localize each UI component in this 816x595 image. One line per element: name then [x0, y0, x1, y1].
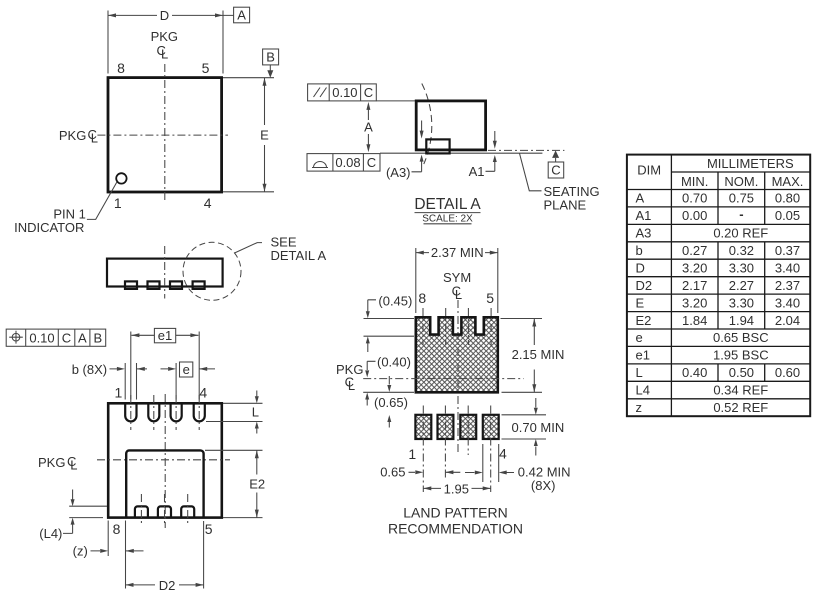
- svg-text:e1: e1: [158, 328, 172, 343]
- svg-text:E2: E2: [249, 476, 265, 491]
- svg-text:C: C: [364, 85, 373, 100]
- svg-text:A: A: [636, 191, 645, 206]
- svg-text:2.17: 2.17: [682, 278, 707, 293]
- svg-text:e: e: [636, 330, 643, 345]
- svg-text:DETAIL A: DETAIL A: [271, 248, 327, 263]
- svg-text:D2: D2: [159, 578, 176, 593]
- svg-text:D: D: [160, 8, 169, 23]
- svg-text:D2: D2: [636, 278, 653, 293]
- svg-text:LAND PATTERN: LAND PATTERN: [403, 505, 508, 521]
- svg-text:NOM.: NOM.: [724, 174, 758, 189]
- svg-text:e1: e1: [636, 348, 650, 363]
- svg-text:MILLIMETERS: MILLIMETERS: [707, 156, 794, 171]
- svg-text:PKG: PKG: [38, 455, 65, 470]
- svg-text:2.37 MIN: 2.37 MIN: [431, 245, 484, 260]
- svg-text:(A3): (A3): [386, 165, 411, 180]
- svg-text:0.10: 0.10: [332, 85, 357, 100]
- svg-text:2.04: 2.04: [775, 313, 800, 328]
- svg-text:0.70 MIN: 0.70 MIN: [512, 420, 565, 435]
- svg-text:A: A: [237, 8, 246, 23]
- svg-text:A1: A1: [636, 208, 652, 223]
- svg-text:E: E: [636, 295, 645, 310]
- svg-text:(0.45): (0.45): [378, 293, 412, 308]
- svg-text:4: 4: [199, 385, 207, 401]
- svg-text:SCALE: 2X: SCALE: 2X: [422, 214, 473, 225]
- svg-text:4: 4: [499, 446, 507, 462]
- svg-text:0.08: 0.08: [335, 155, 360, 170]
- svg-text:C: C: [367, 155, 376, 170]
- svg-text:3.40: 3.40: [775, 295, 800, 310]
- svg-text:2.15 MIN: 2.15 MIN: [512, 347, 565, 362]
- svg-text:b (8X): b (8X): [72, 362, 107, 377]
- svg-text:L: L: [636, 365, 643, 380]
- svg-text:A: A: [78, 330, 87, 345]
- svg-text:A3: A3: [636, 226, 652, 241]
- svg-text:2.27: 2.27: [729, 278, 754, 293]
- svg-text:L4: L4: [636, 383, 650, 398]
- svg-text:1.94: 1.94: [729, 313, 754, 328]
- svg-text:3.20: 3.20: [682, 260, 707, 275]
- svg-text:0.60: 0.60: [775, 365, 800, 380]
- svg-text:C: C: [62, 330, 71, 345]
- svg-text:0.65: 0.65: [380, 464, 405, 479]
- svg-text:z: z: [636, 400, 643, 415]
- svg-text:-: -: [739, 207, 743, 222]
- svg-text:0.75: 0.75: [729, 191, 754, 206]
- svg-text:A: A: [364, 120, 373, 135]
- svg-text:0.05: 0.05: [775, 208, 800, 223]
- svg-text:A1: A1: [469, 164, 485, 179]
- svg-text:B: B: [93, 330, 102, 345]
- svg-text:0.52 REF: 0.52 REF: [713, 400, 768, 415]
- svg-text:b: b: [636, 243, 643, 258]
- svg-text:3.40: 3.40: [775, 260, 800, 275]
- svg-text:L: L: [252, 405, 259, 420]
- svg-text:0.80: 0.80: [775, 191, 800, 206]
- svg-text:(8X): (8X): [531, 478, 556, 493]
- svg-text:1: 1: [408, 446, 416, 462]
- svg-text:0.34 REF: 0.34 REF: [713, 383, 768, 398]
- svg-text:L: L: [161, 47, 168, 62]
- svg-text:0.70: 0.70: [682, 191, 707, 206]
- svg-text:DETAIL A: DETAIL A: [414, 196, 481, 213]
- svg-text:E2: E2: [636, 313, 652, 328]
- svg-text:1.95 BSC: 1.95 BSC: [713, 348, 769, 363]
- svg-text:0.00: 0.00: [682, 208, 707, 223]
- svg-text:PLANE: PLANE: [544, 198, 587, 213]
- svg-text:L: L: [455, 287, 462, 302]
- svg-text:0.27: 0.27: [682, 243, 707, 258]
- svg-text:0.65 BSC: 0.65 BSC: [713, 330, 769, 345]
- svg-text:DIM: DIM: [637, 163, 661, 178]
- svg-text:D: D: [636, 260, 645, 275]
- svg-text:8: 8: [113, 521, 121, 537]
- svg-text:5: 5: [202, 60, 210, 76]
- svg-text:1: 1: [115, 385, 123, 401]
- svg-text:5: 5: [205, 521, 213, 537]
- svg-text:0.40: 0.40: [682, 365, 707, 380]
- svg-text:3.30: 3.30: [729, 295, 754, 310]
- svg-text:0.10: 0.10: [29, 330, 54, 345]
- svg-text:C: C: [551, 163, 560, 178]
- svg-text:PKG: PKG: [151, 29, 178, 44]
- svg-text:3.20: 3.20: [682, 295, 707, 310]
- svg-text:MIN.: MIN.: [681, 174, 708, 189]
- svg-text:0.32: 0.32: [729, 243, 754, 258]
- svg-text:L: L: [348, 378, 355, 393]
- svg-text:(z): (z): [73, 543, 88, 558]
- svg-text:(0.40): (0.40): [377, 354, 411, 369]
- svg-text:0.20 REF: 0.20 REF: [713, 226, 768, 241]
- svg-text:8: 8: [117, 60, 125, 76]
- svg-text:MAX.: MAX.: [772, 174, 804, 189]
- svg-text:1: 1: [114, 195, 122, 211]
- svg-text:E: E: [260, 128, 269, 143]
- svg-text:3.30: 3.30: [729, 260, 754, 275]
- svg-text:(0.65): (0.65): [374, 395, 408, 410]
- svg-text:L: L: [70, 458, 77, 473]
- svg-text:(L4): (L4): [39, 526, 62, 541]
- svg-text:B: B: [266, 50, 275, 65]
- svg-text:L: L: [91, 131, 98, 146]
- svg-text:INDICATOR: INDICATOR: [14, 220, 84, 235]
- svg-text:0.37: 0.37: [775, 243, 800, 258]
- svg-text:8: 8: [418, 290, 426, 306]
- svg-text:5: 5: [486, 290, 494, 306]
- svg-text:1.95: 1.95: [444, 481, 469, 496]
- svg-text:e: e: [183, 362, 190, 377]
- svg-text:0.50: 0.50: [729, 365, 754, 380]
- svg-text:RECOMMENDATION: RECOMMENDATION: [388, 521, 523, 537]
- svg-text:4: 4: [204, 195, 212, 211]
- svg-text:PKG: PKG: [59, 128, 86, 143]
- svg-text:1.84: 1.84: [682, 313, 707, 328]
- svg-text:2.37: 2.37: [775, 278, 800, 293]
